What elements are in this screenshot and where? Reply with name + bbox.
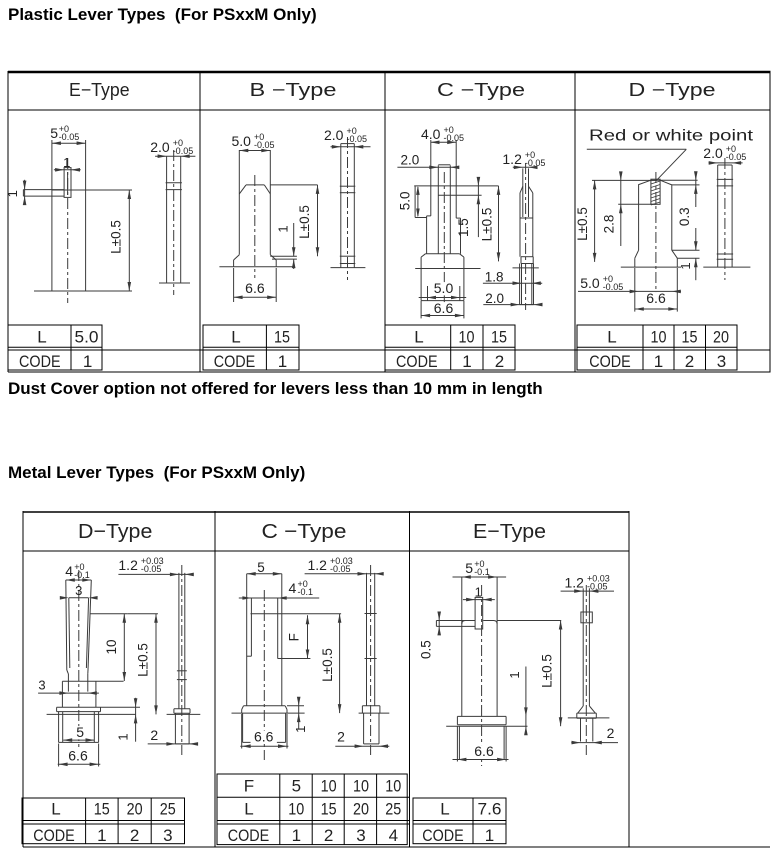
svg-text:2: 2 [685,352,694,371]
svg-text:-0.05: -0.05 [173,146,194,156]
svg-text:5: 5 [50,125,58,141]
svg-text:1.5: 1.5 [456,218,471,237]
svg-text:L±0.5: L±0.5 [297,205,312,239]
svg-text:15: 15 [274,328,290,347]
svg-text:5: 5 [257,560,265,575]
svg-text:1.2: 1.2 [118,557,138,573]
svg-text:2.0: 2.0 [324,127,344,143]
svg-text:15: 15 [94,800,110,819]
svg-text:CODE: CODE [396,352,438,371]
svg-text:L±0.5: L±0.5 [135,643,150,677]
svg-text:L±0.5: L±0.5 [480,208,495,242]
svg-text:-0.05: -0.05 [347,134,368,144]
svg-text:L: L [607,328,616,347]
svg-text:10: 10 [353,776,369,795]
svg-text:2.0: 2.0 [401,153,420,168]
svg-text:C −Type: C −Type [262,520,347,543]
svg-text:4.0: 4.0 [421,126,441,142]
svg-text:4: 4 [65,563,73,579]
svg-text:4: 4 [389,826,398,845]
svg-text:L: L [414,328,423,347]
svg-text:Red or white point: Red or white point [589,128,754,145]
svg-text:-0.05: -0.05 [444,133,465,143]
svg-text:-0.05: -0.05 [141,564,162,574]
svg-text:-0.05: -0.05 [59,132,80,142]
svg-text:-0.1: -0.1 [74,570,90,580]
svg-text:6.6: 6.6 [254,729,274,745]
svg-text:5.0: 5.0 [434,280,454,296]
svg-text:CODE: CODE [214,352,256,371]
svg-text:-0.1: -0.1 [474,567,490,577]
svg-text:20: 20 [353,800,369,819]
svg-text:5.0: 5.0 [398,191,413,210]
svg-text:1.2: 1.2 [502,151,522,167]
svg-text:1.2: 1.2 [565,575,585,591]
svg-text:1: 1 [292,826,301,845]
svg-text:2: 2 [150,727,158,743]
svg-text:F: F [287,633,302,641]
svg-text:2.0: 2.0 [485,291,504,306]
svg-text:2: 2 [495,352,504,371]
svg-text:2: 2 [130,826,139,845]
svg-text:10: 10 [459,328,475,347]
svg-text:C −Type: C −Type [437,80,525,100]
svg-text:CODE: CODE [33,826,75,845]
svg-text:5: 5 [76,724,84,740]
svg-text:4: 4 [289,580,297,596]
svg-text:L±0.5: L±0.5 [109,220,124,254]
svg-text:15: 15 [321,800,337,819]
svg-text:3: 3 [717,352,726,371]
svg-text:1: 1 [63,155,70,170]
svg-text:20: 20 [127,800,143,819]
svg-text:3: 3 [163,826,172,845]
svg-text:6.6: 6.6 [474,743,494,759]
svg-text:10: 10 [651,328,667,347]
svg-text:1: 1 [462,352,471,371]
svg-text:2.0: 2.0 [703,145,723,161]
svg-text:-0.05: -0.05 [254,140,275,150]
svg-text:D −Type: D −Type [629,80,716,100]
svg-text:1: 1 [293,726,308,733]
svg-text:CODE: CODE [228,826,270,845]
svg-text:1.8: 1.8 [485,270,504,285]
svg-text:3: 3 [356,826,365,845]
svg-text:6.6: 6.6 [245,280,265,296]
svg-text:3: 3 [38,677,45,692]
svg-text:5.0: 5.0 [232,133,252,149]
svg-text:7.6: 7.6 [478,800,502,819]
svg-text:2.0: 2.0 [150,139,170,155]
svg-text:D−Type: D−Type [78,520,152,543]
svg-text:L: L [51,800,60,819]
svg-text:CODE: CODE [589,352,631,371]
svg-text:1: 1 [485,826,494,845]
svg-text:6.6: 6.6 [434,300,454,316]
svg-text:-0.05: -0.05 [603,282,624,292]
svg-text:25: 25 [385,800,401,819]
svg-text:L±0.5: L±0.5 [575,207,590,241]
svg-text:1: 1 [97,826,106,845]
svg-text:0.5: 0.5 [419,640,434,659]
svg-text:10: 10 [104,639,119,654]
svg-text:0.3: 0.3 [677,207,692,226]
svg-text:1: 1 [116,733,131,740]
svg-text:5.0: 5.0 [75,328,99,347]
svg-text:1: 1 [654,352,663,371]
svg-text:E−Type: E−Type [69,80,130,100]
svg-text:-0.05: -0.05 [330,564,351,574]
svg-text:5: 5 [292,776,301,795]
svg-text:L: L [244,800,253,819]
svg-text:1: 1 [276,225,291,232]
svg-text:10: 10 [288,800,304,819]
svg-text:1.2: 1.2 [308,557,328,573]
svg-text:2: 2 [607,725,615,741]
svg-text:E−Type: E−Type [473,520,546,543]
svg-text:10: 10 [385,776,401,795]
svg-text:15: 15 [682,328,698,347]
svg-text:6.6: 6.6 [646,290,666,306]
svg-text:2.8: 2.8 [602,215,617,234]
svg-text:1: 1 [475,585,482,600]
svg-text:3: 3 [75,583,82,598]
svg-text:CODE: CODE [422,826,464,845]
svg-text:5: 5 [465,560,473,576]
svg-text:20: 20 [713,328,729,347]
svg-text:2: 2 [324,826,333,845]
svg-text:1: 1 [278,352,287,371]
svg-text:-0.1: -0.1 [298,587,314,597]
svg-text:10: 10 [321,776,337,795]
svg-text:L±0.5: L±0.5 [540,654,555,688]
svg-text:25: 25 [160,800,176,819]
svg-text:-0.05: -0.05 [726,152,747,162]
svg-text:L±0.5: L±0.5 [320,648,335,682]
svg-text:1: 1 [507,671,522,678]
svg-text:F: F [244,776,254,795]
svg-text:CODE: CODE [19,352,61,371]
svg-text:15: 15 [491,328,507,347]
svg-text:6.6: 6.6 [68,748,88,764]
svg-text:1: 1 [678,262,693,269]
svg-text:1: 1 [5,190,20,197]
svg-text:1: 1 [83,352,92,371]
svg-text:L: L [37,328,46,347]
svg-text:2: 2 [337,729,345,745]
svg-text:L: L [440,800,449,819]
svg-text:L: L [231,328,240,347]
svg-text:5.0: 5.0 [580,275,600,291]
svg-text:B −Type: B −Type [250,80,337,100]
